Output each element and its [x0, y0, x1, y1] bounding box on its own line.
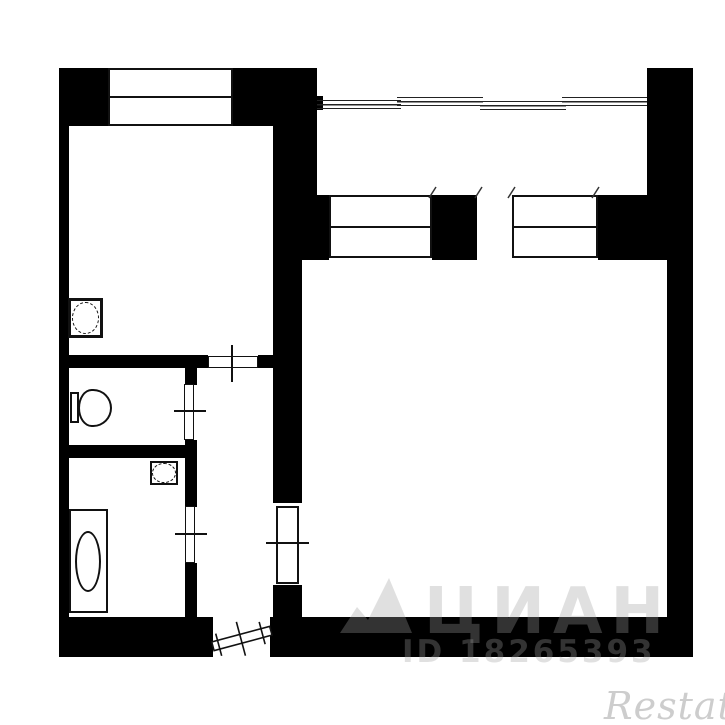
wall-wc-right-top: [185, 368, 197, 385]
wall-kitchen-bottom-left: [59, 355, 208, 368]
entrance-door-leaf: [212, 626, 272, 650]
kitchen-window: [108, 68, 233, 126]
bathroom-sink-basin: [152, 463, 176, 483]
balcony-railing-segment-1: [317, 100, 401, 109]
floorplan-canvas: Циан ID 18265393 Restate: [0, 0, 725, 725]
balcony-railing-segment-2: [397, 97, 483, 106]
kitchen-window-sill-line: [109, 96, 232, 98]
toilet-bowl-icon: [78, 389, 112, 427]
wall-wc-right-bottom: [185, 440, 197, 458]
balcony-window-right: [512, 195, 598, 258]
wall-wc-bottom: [59, 445, 197, 458]
wall-bottom-left: [59, 617, 213, 657]
wall-top-right: [233, 68, 317, 126]
balcony-window-right-sill-line: [513, 226, 597, 228]
wall-balcony-right-pillar: [647, 68, 693, 260]
bathroom-door-leaf: [185, 506, 195, 563]
kitchen-sink-basin: [72, 302, 99, 334]
kitchen-sink-icon: [68, 298, 103, 338]
kitchen-door-leaf: [208, 356, 258, 368]
bathtub-basin: [75, 531, 101, 592]
balcony-window-left-sill-line: [330, 226, 431, 228]
entrance-door-tick-2: [236, 622, 245, 656]
livingroom-door-leaf: [276, 506, 299, 584]
wall-livingroom-left-upper: [273, 260, 302, 503]
entrance-door: [208, 614, 275, 663]
entrance-door-tick-3: [259, 622, 265, 644]
wall-bath-right-bottom: [185, 563, 197, 617]
wall-bath-right-top: [185, 458, 197, 507]
entrance-door-tick-1: [216, 634, 222, 656]
balcony-railing-segment-3: [480, 101, 566, 110]
wall-under-window-left: [273, 195, 329, 260]
bathtub-icon: [69, 509, 108, 613]
balcony-window-left: [329, 195, 432, 258]
wall-window-pier: [432, 195, 477, 260]
balcony-railing-segment-4: [562, 97, 647, 106]
wc-door-leaf: [184, 384, 194, 440]
cian-watermark-id: ID 18265393: [402, 637, 656, 668]
restate-watermark-text: Restate: [604, 684, 725, 725]
bathroom-sink-icon: [150, 461, 178, 485]
wall-kitchen-bottom-right: [258, 355, 273, 368]
wall-balcony-left-pillar: [273, 126, 317, 200]
